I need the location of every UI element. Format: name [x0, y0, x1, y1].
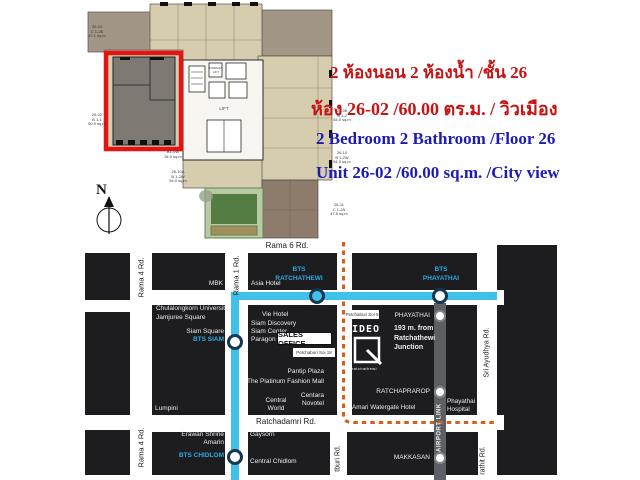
map-block: [446, 432, 478, 475]
listing-thai-line1: 2 ห้องนอน 2 ห้องน้ำ /ชั้น 26: [330, 59, 527, 86]
place-phayathai-hospital: Phayathai Hospital: [447, 398, 475, 413]
place-central-chidlom: Central Chidlom: [250, 458, 297, 466]
floorplan-drawing: [78, 0, 348, 240]
road-label-petchburi: tburi Rd.: [335, 439, 342, 479]
fireman-lift-label: FIREMAN LIFT: [204, 66, 228, 74]
unit-label-26-02: 26-02 B 1-1 60.0 sq.m: [82, 113, 112, 127]
place-vie-hotel: Vie Hotel: [262, 311, 288, 319]
compass-north-label: N: [96, 182, 107, 199]
soi9-box: Petchaburi Soi 9: [345, 310, 379, 319]
bts-siam-label: BTS SIAM: [164, 336, 224, 344]
sales-office-label: SALES OFFICE: [278, 330, 331, 348]
map-block: [497, 245, 557, 475]
bts-line-horizontal: [231, 292, 497, 300]
unit-26-02-shape: [113, 57, 175, 145]
place-gaysorn: Gaysorn: [250, 431, 275, 439]
unit-label-b1-0w: B1-0W 34.0 sq.m: [158, 150, 188, 159]
wing-top-right: [262, 10, 332, 56]
unit-label-26-03: 26-03 C 1-2B 47.1 sq.m: [82, 25, 112, 39]
soi18-label: Petchaburi Soi 18: [296, 350, 332, 355]
place-paragon: Paragon: [251, 336, 276, 344]
bts-station-phayathai: [432, 288, 448, 304]
listing-eng-line2: Unit 26-02 /60.00 sq.m. /City view: [316, 163, 560, 183]
place-pantip: Pantip Plaza: [268, 368, 324, 376]
road-label-ratchadamri: Ratchadamri Rd.: [244, 417, 328, 426]
map-block: [85, 312, 130, 415]
road-label-rama1: Rama 1 Rd.: [232, 253, 241, 299]
road-label-rama6: Rama 6 Rd.: [252, 241, 322, 250]
ideo-sub-label: ratchathewi: [352, 367, 377, 371]
place-central-world: Central World: [262, 397, 290, 413]
place-mbk: MBK: [188, 280, 223, 288]
place-asia-hotel: Asia Hotel: [251, 280, 281, 288]
compass-icon: [97, 196, 121, 234]
road-label-sri-ayudhya: Sri Ayudhya Rd.: [484, 323, 491, 383]
distance-note: 193 m. from Ratchathewi Junction: [394, 324, 435, 353]
place-platinum: The Platinum Fashion Mall: [238, 378, 324, 386]
soi18-box: Petchaburi Soi 18: [293, 348, 335, 357]
lift-label: LIFT: [213, 106, 235, 111]
road-notch: [497, 415, 504, 430]
arl-makkasan-label: MAKKASAN: [378, 454, 430, 462]
road-label-rama4-lower: Rama 4 Rd.: [137, 425, 146, 471]
arl-station-ratchaprarop: [434, 386, 446, 398]
listing-eng-line1: 2 Bedroom 2 Bathroom /Floor 26: [316, 129, 555, 149]
bts-phayathai-label: BTS: [405, 266, 477, 274]
road-label-rathit: rathit Rd.: [480, 440, 487, 480]
place-erawan: Erawan Shrine Amarin: [168, 431, 224, 447]
road-label-rama4-upper: Rama 4 Rd.: [137, 255, 146, 301]
place-lumpini: Lumpini: [155, 405, 178, 413]
sales-office-box: SALES OFFICE: [277, 332, 332, 345]
units-lower-band: [183, 160, 262, 188]
ideo-q-logo: [353, 336, 383, 366]
soi9-label: Petchaburi Soi 9: [345, 312, 378, 317]
map-block: [85, 430, 130, 475]
bts-station-ratchathewi: [309, 288, 325, 304]
bts-chidlom-label: BTS CHIDLOM: [162, 452, 224, 460]
bts-station-chidlom: [227, 449, 243, 465]
map-block: [85, 253, 130, 300]
ideo-brand-label: IDEO: [352, 324, 380, 335]
airport-link-label: AIRPORT LINK: [436, 400, 443, 456]
unit-label-26-11: 26-11 C 1-2A 47.5 sq.m: [324, 203, 354, 217]
bts-phayathai-label: PHAYATHAI: [405, 275, 477, 283]
tree-icon: [199, 190, 213, 202]
unit-label-26-10a: 26-10A B 1-2W 54.0 sq.m: [163, 170, 193, 184]
arl-phayathai-label: PHAYATHAI: [378, 312, 430, 320]
place-centara-novotel: Centara Novotel: [292, 392, 324, 408]
listing-flyer: N FIREMAN LIFT LIFT 26-03 C 1-2B 47.1 sq…: [0, 0, 640, 480]
bts-station-siam: [227, 334, 243, 350]
place-jamjuree: Jamjuree Square: [156, 314, 206, 322]
road-notch: [497, 290, 504, 305]
listing-thai-line2: ห้อง 26-02 /60.00 ตร.ม. / วิวเมือง: [311, 94, 558, 123]
place-siam-discovery: Siam Discovery: [251, 320, 296, 328]
bts-ratchathewi-label: BTS: [260, 266, 338, 274]
arl-station-phayathai: [434, 310, 446, 322]
place-siam-square: Siam Square: [168, 328, 224, 336]
place-chulalongkorn: Chulalongkorn University: [156, 305, 228, 313]
arl-station-makkasan: [434, 452, 446, 464]
arl-ratchaprarop-label: RATCHAPRAROP: [368, 388, 430, 396]
place-amari: Amari Watergate Hotel: [352, 404, 415, 412]
